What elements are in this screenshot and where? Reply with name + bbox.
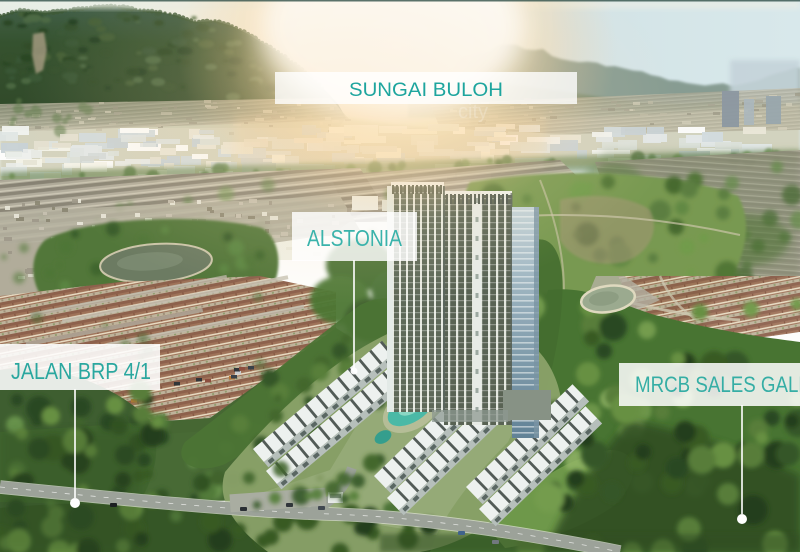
svg-text:city: city <box>458 101 488 123</box>
svg-text:ALSTONIA: ALSTONIA <box>307 225 402 251</box>
svg-text:SUNGAI BULOH: SUNGAI BULOH <box>349 80 503 101</box>
svg-text:MRCB SALES GALLERY: MRCB SALES GALLERY <box>635 372 800 397</box>
svg-text:JALAN BRP 4/1: JALAN BRP 4/1 <box>11 358 151 384</box>
